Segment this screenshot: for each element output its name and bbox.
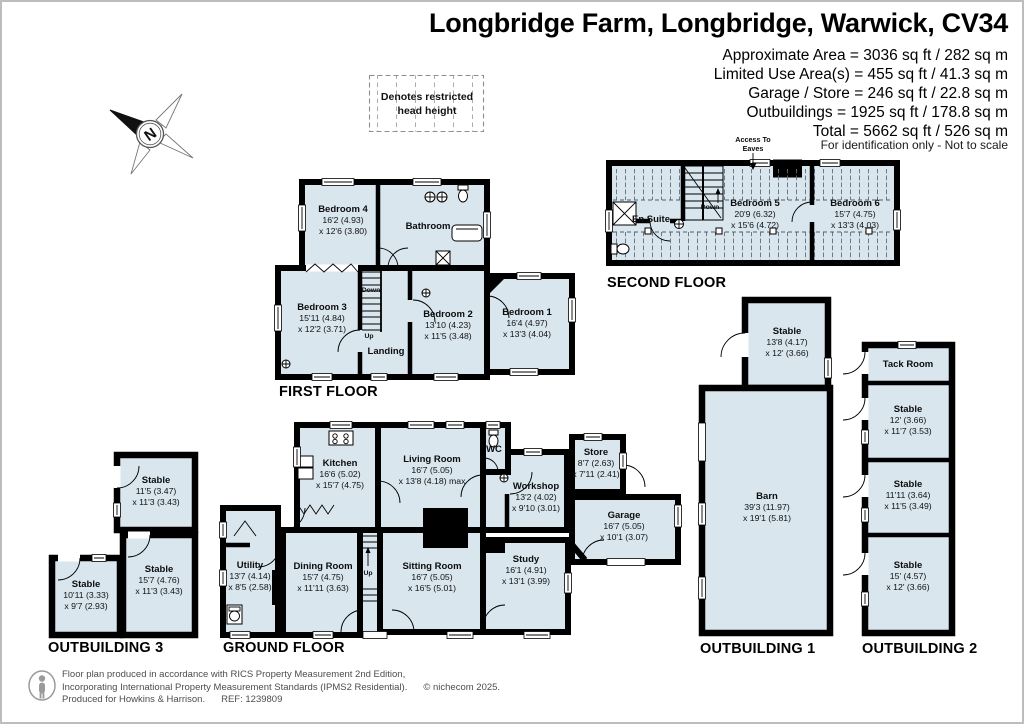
room-kitchen-name: Kitchen	[323, 458, 358, 469]
footer-line1: Floor plan produced in accordance with R…	[62, 669, 500, 682]
footer-disclaimer: Floor plan produced in accordance with R…	[62, 669, 500, 707]
legend-text-line2: head height	[398, 105, 457, 117]
room-sitting-dim2: x 16'5 (5.01)	[408, 583, 456, 593]
room-kitchen-dim2: x 15'7 (4.75)	[316, 480, 364, 490]
room-bedroom5-name: Bedroom 5	[730, 198, 780, 209]
room-garage-dim2: x 10'1 (3.07)	[600, 532, 648, 542]
ground-floor-label: GROUND FLOOR	[223, 640, 345, 656]
room-ob3-stable3-name: Stable	[72, 579, 101, 590]
room-bedroom5-dim2: x 15'6 (4.72)	[731, 220, 779, 230]
room-ob3-stable1-name: Stable	[142, 475, 171, 486]
room-ob3-stable1-dim2: x 11'3 (3.43)	[132, 497, 179, 507]
area-line: Approximate Area = 3036 sq ft / 282 sq m	[714, 46, 1008, 65]
page-title: Longbridge Farm, Longbridge, Warwick, CV…	[429, 8, 1008, 39]
stove-icon	[329, 431, 353, 445]
room-workshop-name: Workshop	[513, 481, 559, 492]
stairs-down-label: Down	[701, 204, 720, 211]
room-ob3-stable3-dim1: 10'11 (3.33)	[63, 590, 109, 600]
room-wc-label: WC	[486, 444, 502, 455]
restricted-hatch-bottom	[613, 232, 893, 260]
room-ob2-stable2-dim2: x 11'5 (3.49)	[884, 501, 931, 511]
room-bedroom1-dim2: x 13'3 (4.04)	[503, 329, 551, 339]
room-bedroom2-dim2: x 11'5 (3.48)	[424, 331, 471, 341]
outbuilding2-plan: Tack Room Stable 12' (3.66) x 11'7 (3.53…	[840, 326, 960, 658]
room-sitting-dim1: 16'7 (5.05)	[411, 572, 452, 582]
ground-floor-plan: Kitchen 16'6 (5.02) x 15'7 (4.75) Living…	[211, 411, 695, 651]
room-study-dim2: x 13'1 (3.99)	[502, 576, 550, 586]
room-store-dim1: 8'7 (2.63)	[578, 458, 615, 468]
toilet-icon	[489, 430, 498, 435]
footer-line2: Incorporating International Property Mea…	[62, 682, 407, 693]
bath-icon	[452, 225, 482, 241]
room-living-name: Living Room	[403, 454, 461, 465]
room-ensuite-label: En Suite	[632, 214, 670, 225]
room-sitting-name: Sitting Room	[402, 561, 461, 572]
room-utility-dim2: x 8'5 (2.58)	[228, 582, 271, 592]
room-bedroom3-dim2: x 12'2 (3.71)	[298, 324, 346, 334]
room-garage-dim1: 16'7 (5.05)	[603, 521, 644, 531]
room-bedroom3-dim1: 15'11 (4.84)	[299, 313, 345, 323]
outbuilding1-label: OUTBUILDING 1	[700, 641, 815, 657]
room-ob1-stable-dim2: x 12' (3.66)	[765, 348, 808, 358]
room-study-name: Study	[513, 554, 540, 565]
room-ob2-stable1-dim2: x 11'7 (3.53)	[884, 426, 931, 436]
room-store-name: Store	[584, 447, 608, 458]
room-bedroom6-dim1: 15'7 (4.75)	[834, 209, 875, 219]
footer-copyright: © nichecom 2025.	[423, 682, 500, 693]
outbuilding3-label: OUTBUILDING 3	[48, 640, 163, 656]
room-ob3-stable3-dim2: x 9'7 (2.93)	[64, 601, 107, 611]
legend-text-line1: Denotes restricted	[381, 91, 473, 103]
nichecom-logo-icon	[27, 669, 57, 703]
room-bedroom6-dim2: x 13'3 (4.03)	[831, 220, 879, 230]
room-ob2-stable3-dim1: 15' (4.57)	[890, 571, 927, 581]
stairs-down-label: Down	[362, 287, 381, 294]
room-study-dim1: 16'1 (4.91)	[505, 565, 546, 575]
restricted-head-height-legend: Denotes restricted head height	[368, 74, 486, 134]
first-floor-plan: Bedroom 4 16'2 (4.93) x 12'6 (3.80) Bath…	[266, 168, 588, 394]
footer-line3: Produced for Howkins & Harrison.	[62, 694, 205, 705]
room-workshop-dim2: x 9'10 (3.01)	[512, 503, 560, 513]
room-bedroom6-name: Bedroom 6	[830, 198, 880, 209]
room-ob1-stable-name: Stable	[773, 326, 802, 337]
room-ob2-stable2-dim1: 11'11 (3.64)	[886, 490, 931, 500]
room-dining-dim1: 15'7 (4.75)	[302, 572, 343, 582]
toilet-icon	[611, 244, 617, 254]
room-bedroom2-name: Bedroom 2	[423, 309, 473, 320]
footer-ref: REF: 1239809	[221, 694, 282, 705]
access-eaves-line2: Eaves	[743, 144, 764, 153]
room-store-dim2: x 7'11 (2.41)	[572, 469, 619, 479]
outbuilding1-plan: Stable 13'8 (4.17) x 12' (3.66) Barn 39'…	[686, 286, 840, 658]
restricted-hatch-top	[613, 169, 893, 200]
area-summary: Approximate Area = 3036 sq ft / 282 sq m…	[714, 46, 1008, 141]
room-bedroom5-dim1: 20'9 (6.32)	[734, 209, 775, 219]
room-bedroom1-name: Bedroom 1	[502, 307, 552, 318]
room-ob2-stable1-dim1: 12' (3.66)	[890, 415, 927, 425]
compass-icon: N	[96, 84, 208, 180]
room-ob1-stable-dim1: 13'8 (4.17)	[766, 337, 807, 347]
second-floor-plan: Access To Eaves En Suite Down Bedroom 5 …	[596, 128, 914, 296]
toilet-icon	[458, 185, 468, 190]
room-tackroom-label: Tack Room	[883, 359, 934, 370]
room-dining-dim2: x 11'11 (3.63)	[297, 583, 349, 593]
floorplan-page: Longbridge Farm, Longbridge, Warwick, CV…	[0, 0, 1024, 724]
area-line: Garage / Store = 246 sq ft / 22.8 sq m	[714, 84, 1008, 103]
outbuilding2-label: OUTBUILDING 2	[862, 641, 977, 657]
room-living-dim1: 16'7 (5.05)	[411, 465, 452, 475]
room-bedroom4-name: Bedroom 4	[318, 204, 368, 215]
room-bedroom3-name: Bedroom 3	[297, 302, 347, 313]
room-ob2-stable3-name: Stable	[894, 560, 923, 571]
kitchen-unit-icon	[298, 468, 313, 479]
room-utility-name: Utility	[237, 560, 264, 571]
compass-star: N	[110, 94, 193, 174]
room-ob3-stable2-dim1: 15'7 (4.76)	[138, 575, 179, 585]
first-floor-label: FIRST FLOOR	[279, 384, 378, 400]
access-eaves-line1: Access To	[735, 135, 771, 144]
room-barn-dim1: 39'3 (11.97)	[744, 502, 790, 512]
stairs-up-label: Up	[364, 333, 373, 340]
room-ob2-stable2-name: Stable	[894, 479, 923, 490]
room-utility-dim1: 13'7 (4.14)	[229, 571, 270, 581]
area-line: Limited Use Area(s) = 455 sq ft / 41.3 s…	[714, 65, 1008, 84]
room-bedroom1-dim1: 16'4 (4.97)	[506, 318, 547, 328]
area-line: Outbuildings = 1925 sq ft / 178.8 sq m	[714, 103, 1008, 122]
room-ob3-stable2-dim2: x 11'3 (3.43)	[135, 586, 182, 596]
room-living-dim2: x 13'8 (4.18) max	[399, 476, 467, 486]
room-barn-dim2: x 19'1 (5.81)	[743, 513, 791, 523]
room-bedroom4-dim2: x 12'6 (3.80)	[319, 226, 367, 236]
room-kitchen-dim1: 16'6 (5.02)	[319, 469, 360, 479]
room-bedroom4-dim1: 16'2 (4.93)	[322, 215, 363, 225]
room-bathroom-label: Bathroom	[406, 221, 451, 232]
room-ob3-stable1-dim1: 11'5 (3.47)	[136, 486, 177, 496]
room-ob3-stable2-name: Stable	[145, 564, 174, 575]
room-dining-name: Dining Room	[293, 561, 352, 572]
chimney-breast	[423, 508, 468, 548]
room-bedroom2-dim1: 13'10 (4.23)	[425, 320, 471, 330]
room-workshop-dim1: 13'2 (4.02)	[515, 492, 556, 502]
room-ob2-stable1-name: Stable	[894, 404, 923, 415]
room-garage-name: Garage	[608, 510, 641, 521]
outbuilding3-plan: Stable 11'5 (3.47) x 11'3 (3.43) Stable …	[36, 436, 204, 658]
stairs-up-label: Up	[363, 570, 372, 577]
room-barn-name: Barn	[756, 491, 778, 502]
room-landing-label: Landing	[368, 346, 405, 357]
room-ob2-stable3-dim2: x 12' (3.66)	[886, 582, 929, 592]
first-floor-bay-window	[306, 264, 358, 272]
